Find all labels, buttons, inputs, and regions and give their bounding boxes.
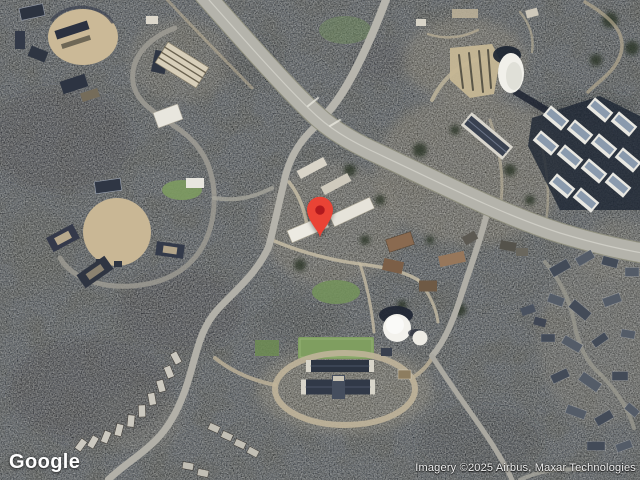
satellite-map[interactable]: Google Imagery ©2025 Airbus, Maxar Techn… [0,0,640,480]
map-attribution: Imagery ©2025 Airbus, Maxar Technologies [415,462,636,474]
satellite-imagery [0,0,640,480]
google-logo[interactable]: Google [9,451,80,474]
map-marker-pin[interactable] [307,196,333,239]
